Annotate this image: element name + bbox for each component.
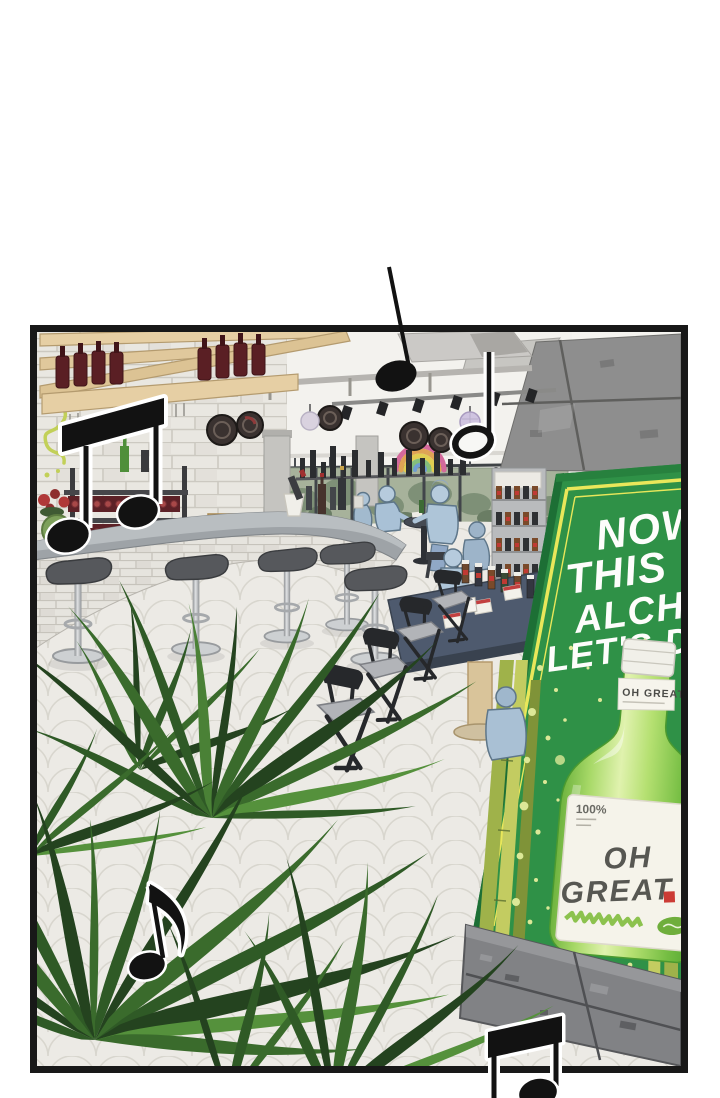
bottle-cap <box>621 639 676 677</box>
red-accent-square <box>664 891 675 902</box>
panel-interior: NOW THIS ALCHO LET'S DR <box>0 327 720 1098</box>
neck-label-text: OH GREAT <box>622 687 685 701</box>
brand-line-1: OH <box>603 841 653 876</box>
comic-page: NOW THIS ALCHO LET'S DR <box>0 0 720 1098</box>
purity-text: 100% <box>576 802 607 817</box>
brand-line-2: GREAT <box>560 873 675 910</box>
comic-panel-art: NOW THIS ALCHO LET'S DR <box>0 0 720 1098</box>
